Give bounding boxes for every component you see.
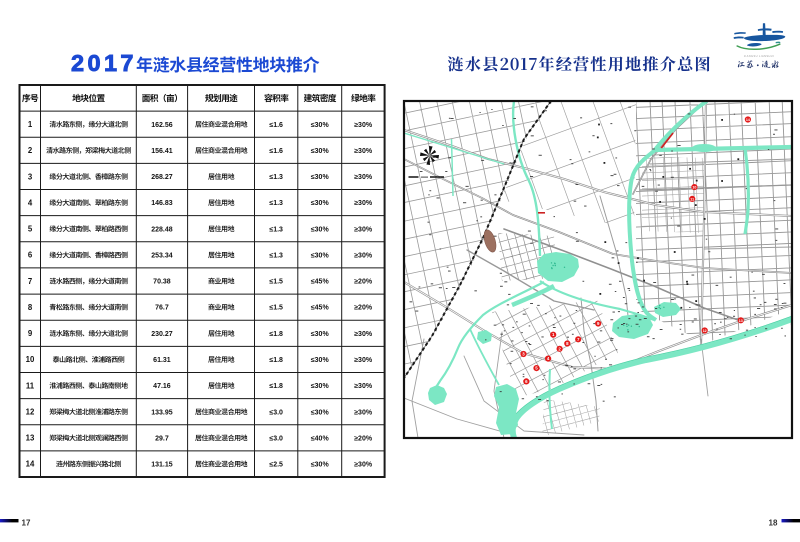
svg-text:253.34: 253.34 — [151, 252, 173, 259]
svg-text:JIANGSU LIANSHUI: JIANGSU LIANSHUI — [744, 54, 774, 58]
svg-text:≥30%: ≥30% — [354, 148, 373, 155]
svg-text:2017: 2017 — [71, 50, 137, 76]
svg-text:230.27: 230.27 — [151, 331, 173, 338]
svg-text:10: 10 — [26, 355, 35, 364]
svg-text:≤30%: ≤30% — [311, 462, 330, 469]
svg-text:18: 18 — [769, 519, 778, 528]
svg-text:≤3.0: ≤3.0 — [269, 435, 283, 442]
svg-text:≤1.8: ≤1.8 — [269, 331, 283, 338]
svg-text:228.48: 228.48 — [151, 226, 173, 233]
svg-text:13: 13 — [739, 319, 743, 323]
svg-text:≤1.8: ≤1.8 — [269, 357, 283, 364]
svg-text:≤2.5: ≤2.5 — [269, 462, 283, 469]
svg-text:≥30%: ≥30% — [354, 122, 373, 129]
svg-text:≤30%: ≤30% — [311, 331, 330, 338]
svg-text:29.7: 29.7 — [155, 435, 169, 442]
svg-text:≤30%: ≤30% — [311, 226, 330, 233]
svg-text:≥20%: ≥20% — [354, 305, 373, 312]
svg-text:≤1.3: ≤1.3 — [269, 174, 283, 181]
svg-text:70.38: 70.38 — [153, 279, 171, 286]
svg-text:≤45%: ≤45% — [311, 279, 330, 286]
svg-text:2: 2 — [28, 146, 33, 155]
svg-text:≥30%: ≥30% — [354, 462, 373, 469]
svg-text:≤30%: ≤30% — [311, 122, 330, 129]
svg-text:5: 5 — [28, 225, 33, 234]
svg-text:≥30%: ≥30% — [354, 409, 373, 416]
svg-text:≤1.5: ≤1.5 — [269, 305, 283, 312]
svg-text:≤1.6: ≤1.6 — [269, 122, 283, 129]
svg-text:268.27: 268.27 — [151, 174, 173, 181]
svg-text:14: 14 — [746, 118, 750, 122]
svg-text:156.41: 156.41 — [151, 148, 173, 155]
svg-text:≤1.3: ≤1.3 — [269, 200, 283, 207]
svg-text:≤1.5: ≤1.5 — [269, 279, 283, 286]
svg-text:146.83: 146.83 — [151, 200, 173, 207]
svg-text:≥30%: ≥30% — [354, 357, 373, 364]
svg-text:6: 6 — [28, 251, 33, 260]
svg-text:12: 12 — [703, 329, 707, 333]
svg-text:12: 12 — [26, 407, 35, 416]
svg-text:≤30%: ≤30% — [311, 174, 330, 181]
svg-text:≥20%: ≥20% — [354, 435, 373, 442]
svg-text:14: 14 — [26, 460, 35, 469]
svg-text:≤1.3: ≤1.3 — [269, 226, 283, 233]
svg-text:8: 8 — [28, 303, 33, 312]
svg-text:4: 4 — [28, 198, 33, 207]
svg-text:≥30%: ≥30% — [354, 174, 373, 181]
svg-text:≤1.8: ≤1.8 — [269, 383, 283, 390]
svg-text:131.15: 131.15 — [151, 462, 173, 469]
svg-text:≥30%: ≥30% — [354, 331, 373, 338]
svg-text:162.56: 162.56 — [151, 122, 173, 129]
svg-text:≥30%: ≥30% — [354, 200, 373, 207]
svg-text:≤30%: ≤30% — [311, 357, 330, 364]
svg-text:≤30%: ≤30% — [311, 252, 330, 259]
svg-text:61.31: 61.31 — [153, 357, 171, 364]
svg-text:≤1.3: ≤1.3 — [269, 252, 283, 259]
svg-text:11: 11 — [690, 197, 694, 201]
svg-text:76.7: 76.7 — [155, 305, 169, 312]
svg-text:≤30%: ≤30% — [311, 200, 330, 207]
svg-text:13: 13 — [26, 434, 35, 443]
svg-text:≥30%: ≥30% — [354, 252, 373, 259]
svg-text:11: 11 — [26, 381, 35, 390]
svg-text:≤1.6: ≤1.6 — [269, 148, 283, 155]
svg-text:≤40%: ≤40% — [311, 435, 330, 442]
svg-text:≥30%: ≥30% — [354, 383, 373, 390]
svg-text:17: 17 — [22, 519, 31, 528]
svg-text:10: 10 — [692, 186, 696, 190]
svg-text:≥20%: ≥20% — [354, 279, 373, 286]
svg-text:1: 1 — [28, 120, 33, 129]
svg-text:≤45%: ≤45% — [311, 305, 330, 312]
svg-text:9: 9 — [28, 329, 33, 338]
svg-text:≥30%: ≥30% — [354, 226, 373, 233]
svg-text:≤30%: ≤30% — [311, 148, 330, 155]
svg-text:7: 7 — [28, 277, 32, 286]
svg-text:133.95: 133.95 — [151, 409, 173, 416]
svg-text:47.16: 47.16 — [153, 383, 171, 390]
svg-text:3: 3 — [28, 172, 33, 181]
svg-text:≤3.0: ≤3.0 — [269, 409, 283, 416]
svg-text:≤30%: ≤30% — [311, 409, 330, 416]
svg-text:≤30%: ≤30% — [311, 383, 330, 390]
